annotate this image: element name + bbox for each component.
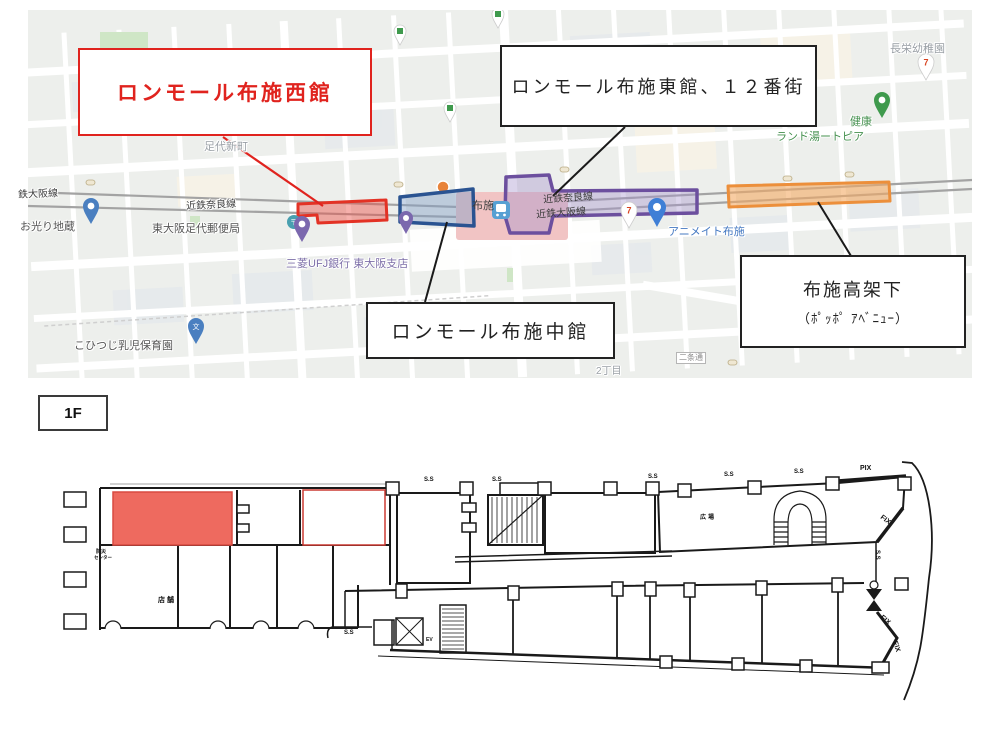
train-station-icon xyxy=(492,201,510,219)
upper-middle-room xyxy=(545,493,655,553)
svg-text:7: 7 xyxy=(626,206,631,216)
middle-tall-room xyxy=(397,493,470,583)
label-nara-line: 近鉄奈良線 xyxy=(186,195,237,213)
ss-note-1: S.S xyxy=(424,477,434,483)
label-2chome: 2丁目 xyxy=(596,362,622,377)
upper-stairs-diagonal xyxy=(488,495,543,545)
svg-text:文: 文 xyxy=(193,322,200,331)
ss-note-lower: S.S xyxy=(344,630,354,636)
page: { "map": { "callouts": { "west": "ロンモール布… xyxy=(0,0,1000,750)
lower-wing-top-wall xyxy=(345,583,864,591)
corner-pillar xyxy=(898,477,911,490)
right-small-square xyxy=(895,578,908,590)
callout-middle-text: ロンモール布施中館 xyxy=(391,317,589,344)
center-note-line1: 防災 xyxy=(96,548,107,555)
ss-note-4: S.S xyxy=(724,472,734,478)
ev-note: EV xyxy=(426,637,433,643)
right-hall-thick-diagonal xyxy=(877,508,903,542)
pix-note: PIX xyxy=(860,465,872,472)
label-nijo-dori: 二条通 xyxy=(676,352,706,364)
elevator xyxy=(396,618,423,645)
fix-note-2: FIX xyxy=(879,614,892,627)
highlighted-room-west xyxy=(113,492,232,545)
hiroba-note: 広場 xyxy=(700,513,716,521)
outlined-room-red xyxy=(303,490,385,545)
ss-note-3: S.S xyxy=(648,474,658,480)
callout-middle-building: ロンモール布施中館 xyxy=(366,302,615,359)
label-post-office: 東大阪足代郵便局 xyxy=(152,220,240,236)
lower-wing-partitions xyxy=(513,584,838,666)
underpass-highlight xyxy=(728,182,890,207)
label-osaka-line-left: 鉄大阪線 xyxy=(18,184,58,200)
label-kenko: 健康 xyxy=(850,113,872,129)
tenpo-note: 店舗 xyxy=(158,595,176,604)
label-ohikari-jizo: お光り地蔵 xyxy=(20,218,75,234)
door-stubs xyxy=(237,505,249,532)
ss-note-5: S.S xyxy=(794,469,804,475)
ss-note-vertical: S.S xyxy=(874,550,880,560)
site-boundary-curve xyxy=(902,462,932,700)
fix-note-3: FIX xyxy=(891,640,901,653)
floor-level-tag: 1F xyxy=(38,395,108,431)
label-fuse-station: 布施 xyxy=(472,197,494,213)
callout-underpass: 布施高架下 （ﾎﾟｯﾎﾟ ｱﾍﾞﾆｭｰ） xyxy=(740,255,966,348)
label-ashiro-shinmachi: 足代新町 xyxy=(204,138,248,154)
callout-east-building: ロンモール布施東館、１２番街 xyxy=(500,45,817,127)
upper-stairs-hatch xyxy=(492,497,537,543)
right-hall-thick-top xyxy=(838,476,906,481)
label-choei-kindergarten: 長栄幼稚園 xyxy=(890,40,945,56)
callout-underpass-line1: 布施高架下 xyxy=(803,276,903,302)
right-hall xyxy=(658,477,905,552)
lower-stairwell xyxy=(440,605,466,653)
callout-west-text: ロンモール布施西館 xyxy=(117,77,333,107)
label-land-yu: ランド湯ートピア xyxy=(776,128,864,144)
label-bank: 三菱UFJ銀行 東大阪支店 xyxy=(286,255,408,271)
svg-text:7: 7 xyxy=(923,58,928,68)
label-nursery: こひつじ乳児保育園 xyxy=(74,337,173,353)
floorplan-canvas: S.S S.S S.S S.S S.S S.S S.S PIX FIX FIX … xyxy=(0,420,1000,750)
label-animate-fuse: アニメイト布施 xyxy=(668,223,745,239)
arched-staircase xyxy=(774,491,826,545)
callout-east-text: ロンモール布施東館、１２番街 xyxy=(512,73,806,99)
callout-west-building: ロンモール布施西館 xyxy=(78,48,372,136)
ss-note-2: S.S xyxy=(492,477,502,483)
right-end-corner-block xyxy=(872,662,889,673)
left-edge-tabs xyxy=(64,492,86,629)
right-end-door-symbol xyxy=(866,581,882,611)
center-note-line2: センター xyxy=(94,554,112,561)
upper-stairwell-cap xyxy=(500,483,543,495)
callout-underpass-line2: （ﾎﾟｯﾎﾟ ｱﾍﾞﾆｭｰ） xyxy=(797,308,909,327)
entrance-room xyxy=(374,620,394,645)
